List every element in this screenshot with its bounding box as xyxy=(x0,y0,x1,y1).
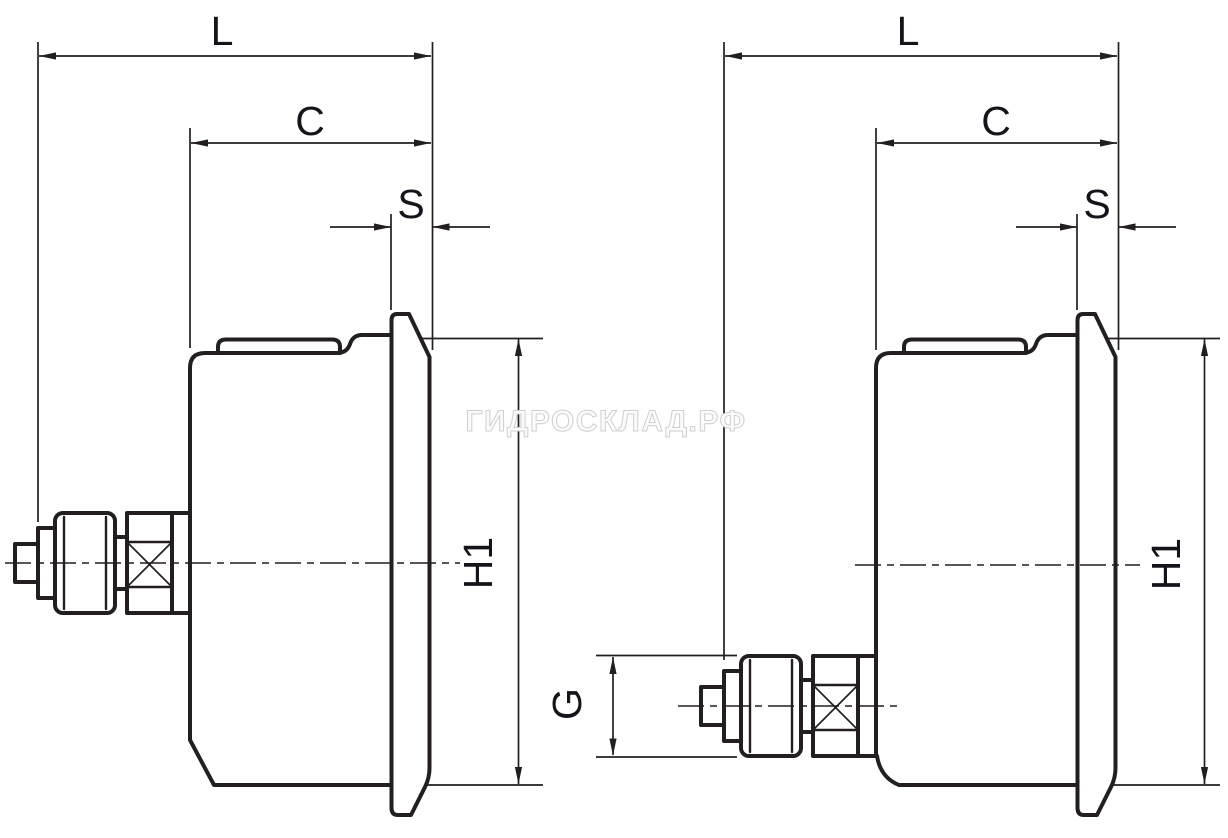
dim-label-h1: H1 xyxy=(455,537,501,589)
gauge-body xyxy=(5,314,460,815)
arrowhead xyxy=(1100,139,1117,146)
dim-label-s: S xyxy=(1083,181,1110,227)
dim-L: L xyxy=(38,8,433,522)
arrowhead xyxy=(414,52,431,59)
arrowhead xyxy=(191,139,208,146)
arrowhead xyxy=(609,739,616,756)
case-outline-upper xyxy=(876,335,1077,656)
panel-flange xyxy=(392,314,430,815)
dim-C: C xyxy=(190,98,431,348)
dim-label-g: G xyxy=(544,688,590,720)
dim-label-s: S xyxy=(397,181,424,227)
arrowhead xyxy=(1119,223,1136,230)
dim-label-h1: H1 xyxy=(1143,538,1189,590)
arrowhead xyxy=(1201,767,1208,784)
arrowhead xyxy=(609,657,616,674)
dim-S: S xyxy=(330,181,490,310)
arrowhead xyxy=(1100,52,1117,59)
left-view: L C S H1 xyxy=(5,8,543,815)
arrowhead xyxy=(877,139,894,146)
arrowhead xyxy=(374,223,391,230)
dim-label-l: L xyxy=(897,8,920,54)
arrowhead xyxy=(515,767,522,784)
dim-S: S xyxy=(1016,181,1176,310)
arrowhead xyxy=(433,223,450,230)
arrowhead xyxy=(725,52,742,59)
bezel-rim xyxy=(904,340,1026,354)
watermark-text: ГИДРОСКЛАД.РФ xyxy=(465,405,746,438)
dim-label-c: C xyxy=(981,98,1011,144)
arrowhead xyxy=(515,339,522,356)
arrowhead xyxy=(39,52,56,59)
arrowhead xyxy=(1060,223,1077,230)
drawing-canvas: L C S H1 xyxy=(0,0,1228,838)
arrowhead xyxy=(1201,339,1208,356)
bezel-rim xyxy=(218,340,340,354)
gauge-body xyxy=(678,314,1140,815)
case-outline xyxy=(190,335,391,785)
dim-label-c: C xyxy=(295,98,325,144)
arrowhead xyxy=(414,139,431,146)
dim-C: C xyxy=(876,98,1117,350)
technical-drawing: L C S H1 xyxy=(0,0,1228,838)
case-outline-lower xyxy=(877,756,1077,785)
dim-label-l: L xyxy=(211,8,234,54)
